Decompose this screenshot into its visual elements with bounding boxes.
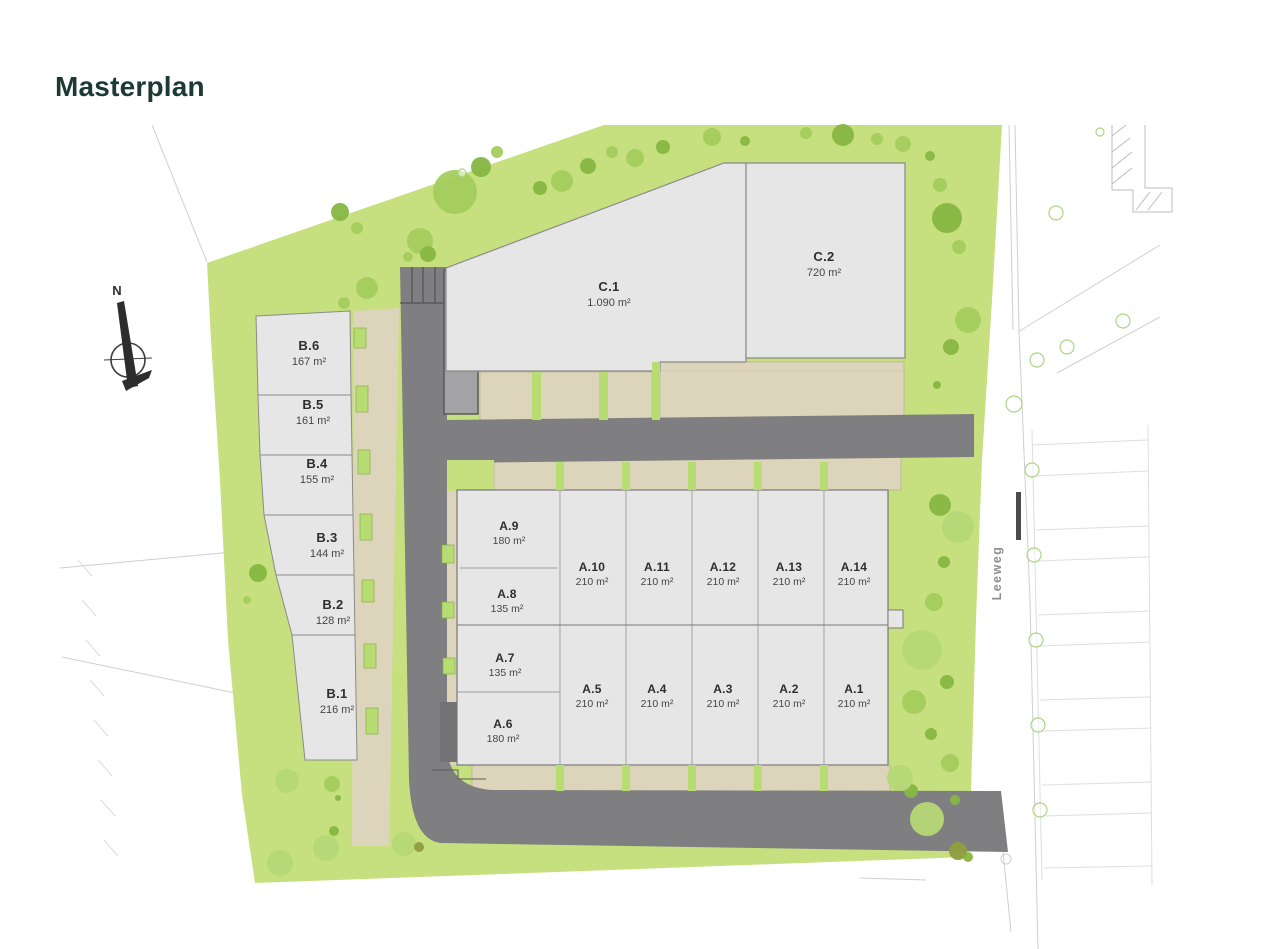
plot-id: A.8 — [491, 587, 524, 603]
plot-label-a11: A.11 210 m² — [641, 560, 674, 589]
street-name-label: Leeweg — [990, 546, 1004, 601]
plot-label-c2: C.2 720 m² — [807, 249, 841, 280]
plot-label-a12: A.12 210 m² — [707, 560, 740, 589]
plot-label-a2: A.2 210 m² — [773, 682, 806, 711]
plot-id: A.11 — [641, 560, 674, 576]
plot-id: A.4 — [641, 682, 674, 698]
plot-label-a8: A.8 135 m² — [491, 587, 524, 616]
plot-area: 135 m² — [489, 667, 522, 681]
plot-area: 210 m² — [576, 698, 609, 712]
plot-id: A.12 — [707, 560, 740, 576]
plot-id: A.9 — [493, 519, 526, 535]
plot-area: 180 m² — [493, 535, 526, 549]
plot-id: A.14 — [838, 560, 871, 576]
plot-label-a14: A.14 210 m² — [838, 560, 871, 589]
plot-area: 128 m² — [316, 614, 350, 628]
plot-area: 210 m² — [707, 576, 740, 590]
plot-area: 180 m² — [487, 733, 520, 747]
plot-label-a13: A.13 210 m² — [773, 560, 806, 589]
plot-area: 1.090 m² — [587, 296, 630, 310]
plot-id: A.6 — [487, 717, 520, 733]
plot-id: A.10 — [576, 560, 609, 576]
plot-id: A.1 — [838, 682, 871, 698]
plot-area: 155 m² — [300, 473, 334, 487]
plot-label-b4: B.4 155 m² — [300, 456, 334, 487]
plot-area: 135 m² — [491, 603, 524, 617]
plot-label-a4: A.4 210 m² — [641, 682, 674, 711]
plot-id: B.6 — [292, 338, 326, 355]
plot-id: A.5 — [576, 682, 609, 698]
plot-label-a10: A.10 210 m² — [576, 560, 609, 589]
plot-id: B.4 — [300, 456, 334, 473]
plot-id: A.7 — [489, 651, 522, 667]
plot-label-a6: A.6 180 m² — [487, 717, 520, 746]
plot-label-b6: B.6 167 m² — [292, 338, 326, 369]
plot-id: B.2 — [316, 597, 350, 614]
plot-area: 144 m² — [310, 547, 344, 561]
plot-label-a5: A.5 210 m² — [576, 682, 609, 711]
plot-id: B.3 — [310, 530, 344, 547]
plot-id: A.13 — [773, 560, 806, 576]
plot-area: 210 m² — [707, 698, 740, 712]
plot-area: 167 m² — [292, 355, 326, 369]
plot-area: 210 m² — [773, 576, 806, 590]
plot-label-c1: C.1 1.090 m² — [587, 279, 630, 310]
plot-area: 216 m² — [320, 703, 354, 717]
plot-area: 210 m² — [838, 698, 871, 712]
plot-label-b5: B.5 161 m² — [296, 397, 330, 428]
plot-id: B.5 — [296, 397, 330, 414]
plot-label-a7: A.7 135 m² — [489, 651, 522, 680]
plot-label-a1: A.1 210 m² — [838, 682, 871, 711]
masterplan-canvas: N Leeweg C.1 1.090 m² C.2 720 m² B.6 167… — [0, 0, 1280, 949]
compass-north-icon — [104, 301, 152, 391]
plot-id: C.2 — [807, 249, 841, 266]
street-wall — [1016, 492, 1021, 540]
plot-label-b3: B.3 144 m² — [310, 530, 344, 561]
plot-id: A.3 — [707, 682, 740, 698]
masterplan-drawing — [0, 0, 1280, 949]
plot-label-a9: A.9 180 m² — [493, 519, 526, 548]
plot-id: A.2 — [773, 682, 806, 698]
plot-label-a3: A.3 210 m² — [707, 682, 740, 711]
plot-area: 161 m² — [296, 414, 330, 428]
plot-area: 210 m² — [773, 698, 806, 712]
plot-area: 210 m² — [838, 576, 871, 590]
plot-area: 210 m² — [641, 576, 674, 590]
plot-label-b2: B.2 128 m² — [316, 597, 350, 628]
plot-id: C.1 — [587, 279, 630, 296]
plot-area: 210 m² — [576, 576, 609, 590]
plot-area: 210 m² — [641, 698, 674, 712]
plot-label-b1: B.1 216 m² — [320, 686, 354, 717]
plot-area: 720 m² — [807, 266, 841, 280]
compass-north-label: N — [112, 283, 121, 298]
plot-id: B.1 — [320, 686, 354, 703]
